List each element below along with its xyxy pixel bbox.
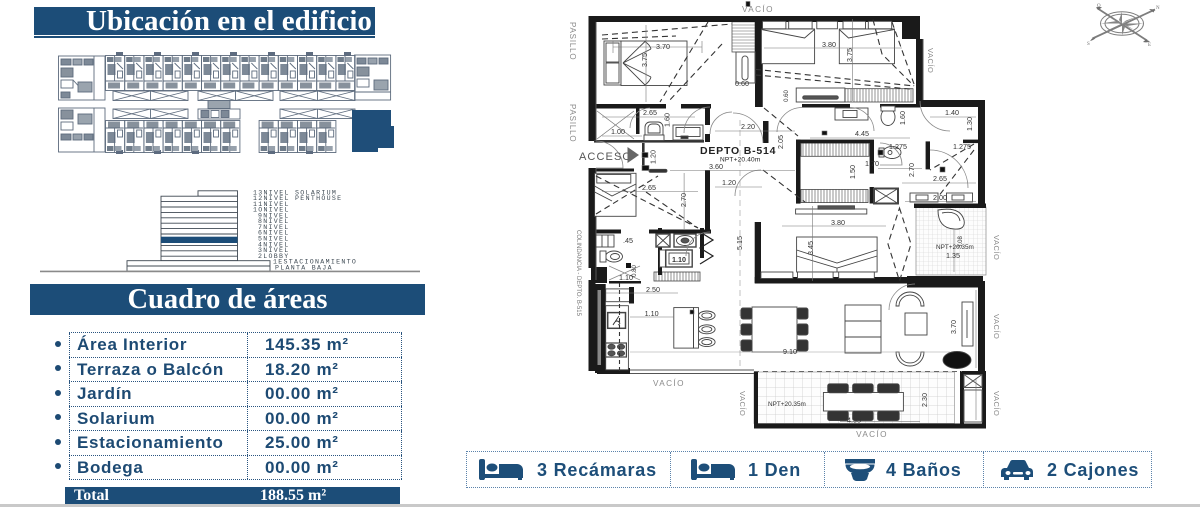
- svg-text:2.30: 2.30: [920, 393, 929, 407]
- svg-text:1.10: 1.10: [619, 273, 633, 282]
- svg-text:1.20: 1.20: [722, 178, 736, 187]
- svg-text:PASILLO: PASILLO: [568, 104, 577, 142]
- svg-text:3.80: 3.80: [831, 218, 845, 227]
- svg-text:.45: .45: [623, 236, 633, 245]
- svg-text:9.10: 9.10: [783, 347, 797, 356]
- svg-text:2.05: 2.05: [776, 135, 785, 149]
- svg-text:NPT+20.40m: NPT+20.40m: [720, 157, 760, 164]
- svg-text:1.275: 1.275: [889, 142, 907, 151]
- svg-text:3.80: 3.80: [822, 40, 836, 49]
- svg-text:PLANTA BAJA: PLANTA BAJA: [275, 264, 333, 271]
- svg-text:VACÍO: VACÍO: [653, 378, 685, 388]
- svg-text:2.70: 2.70: [679, 193, 688, 207]
- svg-text:1.70: 1.70: [865, 159, 879, 168]
- svg-text:1.10: 1.10: [672, 255, 686, 264]
- svg-text:VACÍO: VACÍO: [738, 391, 747, 416]
- svg-text:VACÍO: VACÍO: [992, 235, 1001, 260]
- svg-text:2.65: 2.65: [642, 183, 656, 192]
- svg-text:3.60: 3.60: [709, 162, 723, 171]
- svg-text:4.45: 4.45: [855, 129, 869, 138]
- svg-text:3.45: 3.45: [806, 241, 815, 255]
- svg-text:3.70: 3.70: [949, 320, 958, 334]
- svg-text:3.75: 3.75: [845, 48, 854, 62]
- svg-text:2.65: 2.65: [933, 174, 947, 183]
- svg-text:0.60: 0.60: [735, 79, 749, 88]
- svg-text:E: E: [1148, 43, 1151, 47]
- svg-text:1.10: 1.10: [645, 309, 659, 318]
- svg-text:2.20: 2.20: [741, 122, 755, 131]
- svg-text:PASILLO: PASILLO: [568, 22, 577, 60]
- svg-text:DEPTO B-514: DEPTO B-514: [700, 145, 776, 157]
- svg-text:VACÍO: VACÍO: [856, 429, 888, 439]
- svg-text:O: O: [1097, 4, 1101, 9]
- svg-text:VACÍO: VACÍO: [742, 4, 774, 14]
- svg-text:2.50: 2.50: [646, 285, 660, 294]
- svg-text:1.35: 1.35: [946, 251, 960, 260]
- svg-text:3.75: 3.75: [640, 53, 649, 67]
- svg-text:0.60: 0.60: [784, 90, 790, 102]
- svg-text:5.15: 5.15: [735, 236, 744, 250]
- svg-text:2.65: 2.65: [643, 108, 657, 117]
- svg-text:2.00: 2.00: [933, 193, 947, 202]
- svg-text:1.60: 1.60: [663, 113, 672, 127]
- svg-text:NPT+20.35m: NPT+20.35m: [936, 244, 974, 251]
- svg-text:3.70: 3.70: [656, 42, 670, 51]
- svg-text:1.50: 1.50: [848, 165, 857, 179]
- svg-text:COLINDANCIA - DEPTO. B-515: COLINDANCIA - DEPTO. B-515: [575, 230, 581, 317]
- svg-text:S: S: [1087, 42, 1090, 47]
- svg-text:VACÍO: VACÍO: [992, 391, 1001, 416]
- svg-text:1.30: 1.30: [965, 117, 974, 131]
- svg-text:1.20: 1.20: [649, 150, 658, 164]
- svg-text:2.70: 2.70: [907, 163, 916, 177]
- svg-text:ACCESO: ACCESO: [579, 151, 632, 163]
- svg-text:N: N: [1156, 6, 1160, 11]
- svg-text:VACÍO: VACÍO: [926, 48, 935, 73]
- svg-text:NPT+20.35m: NPT+20.35m: [768, 401, 806, 408]
- svg-text:4.95: 4.95: [847, 416, 861, 425]
- svg-text:1.00: 1.00: [611, 127, 625, 136]
- svg-text:0.80: 0.80: [632, 265, 638, 277]
- svg-text:1.60: 1.60: [898, 111, 907, 125]
- svg-text:1.40: 1.40: [945, 108, 959, 117]
- svg-text:1.275: 1.275: [953, 142, 971, 151]
- svg-text:VACÍO: VACÍO: [992, 314, 1001, 339]
